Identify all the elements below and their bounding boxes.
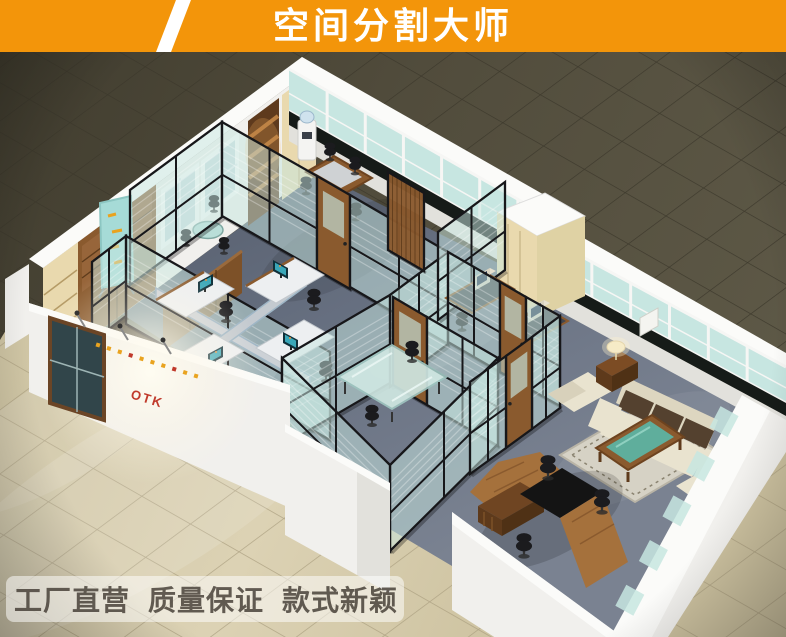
slogan-factory-direct: 工厂直营 [14, 579, 130, 619]
slogan-style: 款式新颖 [282, 579, 398, 619]
banner-title: 空间分割大师 [0, 0, 786, 52]
product-image: 空间分割大师 [0, 0, 786, 637]
slogan-quality: 质量保证 [148, 579, 264, 619]
title-banner: 空间分割大师 [0, 0, 786, 52]
footer-slogan-bar: 工厂直营 质量保证 款式新颖 [6, 576, 404, 622]
vignette [0, 52, 786, 637]
office-3d-render: OTK [0, 0, 786, 637]
